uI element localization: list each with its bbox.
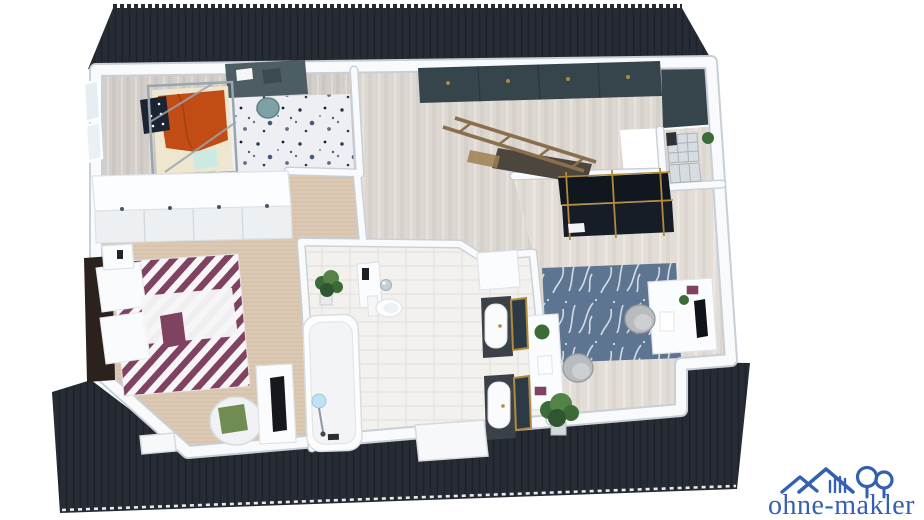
- desk-plant: [535, 325, 550, 340]
- office-chair-seat: [634, 314, 652, 330]
- desk-plant: [679, 295, 689, 305]
- dormer-bump: [140, 433, 176, 454]
- water-heater: [381, 280, 392, 291]
- sink-basin: [488, 382, 510, 428]
- tall-cabinet: [477, 250, 520, 290]
- armchair: [210, 397, 262, 445]
- bathtub: [303, 314, 363, 452]
- storage-box: [666, 132, 677, 146]
- nightstand: [102, 244, 134, 270]
- lamp-icon: [117, 250, 123, 259]
- floor-plan-canvas: ohne-makler: [0, 0, 924, 520]
- double-bed: [84, 254, 250, 396]
- rack-box: [568, 223, 585, 233]
- kids-desk: [225, 60, 308, 98]
- office-desk-right: [648, 278, 717, 354]
- gold-mirror: [511, 298, 528, 350]
- laptop-icon: [538, 356, 553, 375]
- picture-frame: [534, 386, 547, 396]
- window-left-wall: [84, 80, 102, 162]
- built-in-cabinets: [418, 61, 662, 103]
- faucet: [501, 404, 505, 408]
- desk-chair: [257, 98, 279, 118]
- watermark-text: ohne-makler: [768, 490, 915, 520]
- clothes-rack: [558, 168, 674, 240]
- dotted-cushion: [140, 96, 170, 134]
- green-cushion: [218, 404, 248, 434]
- dormer-bump: [415, 420, 488, 461]
- window-pane-icon: [84, 80, 100, 122]
- tv-icon: [270, 376, 287, 432]
- tub-faucet: [328, 434, 339, 440]
- sink-basin: [485, 304, 507, 348]
- watermark-logo: ohne-makler: [768, 468, 915, 520]
- papers: [660, 312, 674, 331]
- folded-blanket: [140, 288, 238, 344]
- pillow: [100, 312, 150, 364]
- accent-cushion: [160, 312, 186, 348]
- picture-frame: [686, 285, 699, 295]
- window-pane-icon: [86, 122, 102, 162]
- office-chair-seat: [572, 363, 590, 379]
- vanity-unit-1: [481, 296, 528, 358]
- floor-plan-render: ohne-makler: [0, 0, 924, 520]
- tv-console: [256, 364, 296, 444]
- wardrobe-row: [92, 171, 292, 243]
- potted-plant-icon: [702, 132, 714, 144]
- gold-mirror: [514, 376, 531, 430]
- faucet: [498, 324, 502, 328]
